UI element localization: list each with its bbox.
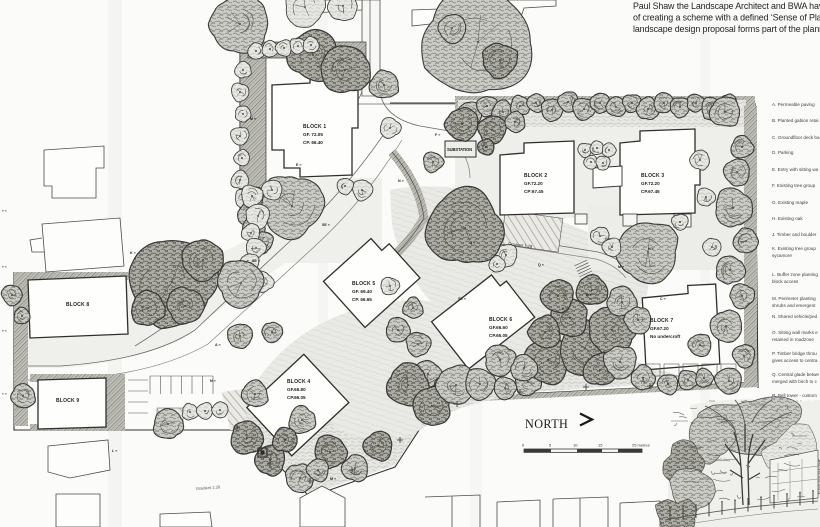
svg-text:BLOCK 7: BLOCK 7 <box>650 318 673 324</box>
svg-text:GF.66.60: GF.66.60 <box>489 325 508 330</box>
svg-text:≡ ≡: ≡ ≡ <box>2 392 7 396</box>
svg-text:M. Perimeter planting: M. Perimeter planting <box>772 296 816 301</box>
svg-text:E ≡: E ≡ <box>296 163 302 167</box>
svg-text:BLOCK 6: BLOCK 6 <box>489 317 512 323</box>
svg-text:GF.72.20: GF.72.20 <box>524 181 543 186</box>
svg-text:≡ ≡: ≡ ≡ <box>2 329 7 333</box>
svg-text:GF.72.20: GF.72.20 <box>641 181 660 186</box>
svg-text:sycamore: sycamore <box>772 253 792 258</box>
svg-text:K ≡: K ≡ <box>130 251 136 255</box>
svg-text:gives access to centra: gives access to centra <box>772 358 818 363</box>
svg-text:B. Planted gabion retai: B. Planted gabion retai <box>772 118 818 123</box>
svg-text:CP. 66.40: CP. 66.40 <box>303 140 323 145</box>
svg-text:CP:67.45: CP:67.45 <box>524 189 544 194</box>
svg-text:D. Parking: D. Parking <box>772 150 794 155</box>
svg-text:P ≡: P ≡ <box>562 307 567 311</box>
svg-text:H ≡: H ≡ <box>648 247 654 251</box>
svg-text:H. Existing oak: H. Existing oak <box>772 216 803 221</box>
svg-text:SUBSTATION: SUBSTATION <box>447 147 472 152</box>
svg-text:J ≡: J ≡ <box>470 241 475 245</box>
svg-text:BLOCK 8: BLOCK 8 <box>66 302 89 308</box>
svg-text:F ≡: F ≡ <box>435 133 440 137</box>
svg-text:C. Groundfloor deck ba: C. Groundfloor deck ba <box>772 135 820 140</box>
svg-text:10: 10 <box>573 443 578 448</box>
svg-text:C ≡: C ≡ <box>660 297 666 301</box>
svg-text:L ≡: L ≡ <box>112 449 117 453</box>
svg-text:A ≡: A ≡ <box>215 343 221 347</box>
svg-text:SE ≡: SE ≡ <box>322 223 330 227</box>
svg-text:CP.67.45: CP.67.45 <box>641 189 660 194</box>
svg-text:M ≡: M ≡ <box>250 117 256 121</box>
svg-text:K. Existing tree group: K. Existing tree group <box>772 246 816 251</box>
svg-text:BLOCK 3: BLOCK 3 <box>641 173 664 179</box>
svg-text:25 metres: 25 metres <box>632 443 650 448</box>
svg-text:E. Entry with sitting wa: E. Entry with sitting wa <box>772 167 819 172</box>
svg-text:N ≡: N ≡ <box>210 379 216 383</box>
svg-text:GF.66.80: GF.66.80 <box>287 387 306 392</box>
svg-text:block access: block access <box>772 279 799 284</box>
svg-text:A. Permeable paving: A. Permeable paving <box>772 102 815 107</box>
svg-text:M ≡: M ≡ <box>330 477 336 481</box>
svg-text:G. Existing maple: G. Existing maple <box>772 200 808 205</box>
svg-text:F. Existing tree group: F. Existing tree group <box>772 183 816 188</box>
svg-text:BLOCK 5: BLOCK 5 <box>352 281 375 287</box>
svg-text:BLOCK 2: BLOCK 2 <box>524 173 547 179</box>
svg-text:SE ≡: SE ≡ <box>252 259 260 263</box>
svg-text:Paul Shaw the Landscape Archit: Paul Shaw the Landscape Architect and BW… <box>633 1 820 11</box>
svg-text:J. Timber and boulder: J. Timber and boulder <box>772 232 817 237</box>
svg-text:shrubs and emergent: shrubs and emergent <box>772 303 816 308</box>
svg-text:G ≡: G ≡ <box>605 237 611 241</box>
svg-text:CP.65.05: CP.65.05 <box>489 333 508 338</box>
svg-text:Q ≡: Q ≡ <box>538 263 544 267</box>
svg-text:N. Shared vehicle/ped: N. Shared vehicle/ped <box>772 314 818 319</box>
svg-text:retained in roadzone: retained in roadzone <box>772 337 814 342</box>
svg-text:GF. 72.05: GF. 72.05 <box>303 132 323 137</box>
svg-text:O. Sitting wall marks e: O. Sitting wall marks e <box>772 330 818 335</box>
svg-text:≡ ≡: ≡ ≡ <box>2 209 7 213</box>
svg-text:BLOCK 4: BLOCK 4 <box>287 379 310 385</box>
svg-text:CP.66.05: CP.66.05 <box>287 395 306 400</box>
svg-text:15: 15 <box>598 443 603 448</box>
svg-text:B ≡: B ≡ <box>586 293 592 297</box>
svg-text:SE ≡: SE ≡ <box>458 297 466 301</box>
svg-text:GF. 69.40: GF. 69.40 <box>352 289 372 294</box>
svg-text:M ≡: M ≡ <box>618 265 624 269</box>
svg-text:Q. Central glade betwe: Q. Central glade betwe <box>772 372 819 377</box>
svg-text:merged with birch to c: merged with birch to c <box>772 379 818 384</box>
svg-text:BLOCK 1: BLOCK 1 <box>303 124 326 130</box>
svg-text:No undercroft: No undercroft <box>650 334 681 339</box>
svg-text:of creating a scheme with a de: of creating a scheme with a defined ‘Sen… <box>633 13 820 23</box>
svg-text:L. Buffer zone planting: L. Buffer zone planting <box>772 272 818 277</box>
svg-text:N ≡: N ≡ <box>398 179 404 183</box>
svg-text:landscape design proposal form: landscape design proposal forms part of … <box>633 24 820 34</box>
svg-text:CP. 66.65: CP. 66.65 <box>352 297 372 302</box>
svg-text:≡ ≡: ≡ ≡ <box>2 265 7 269</box>
svg-text:NORTH: NORTH <box>525 417 568 431</box>
svg-text:GF.67.20: GF.67.20 <box>650 326 669 331</box>
svg-text:P. Timber bridge throu: P. Timber bridge throu <box>772 351 817 356</box>
svg-text:BLOCK 9: BLOCK 9 <box>56 398 79 404</box>
